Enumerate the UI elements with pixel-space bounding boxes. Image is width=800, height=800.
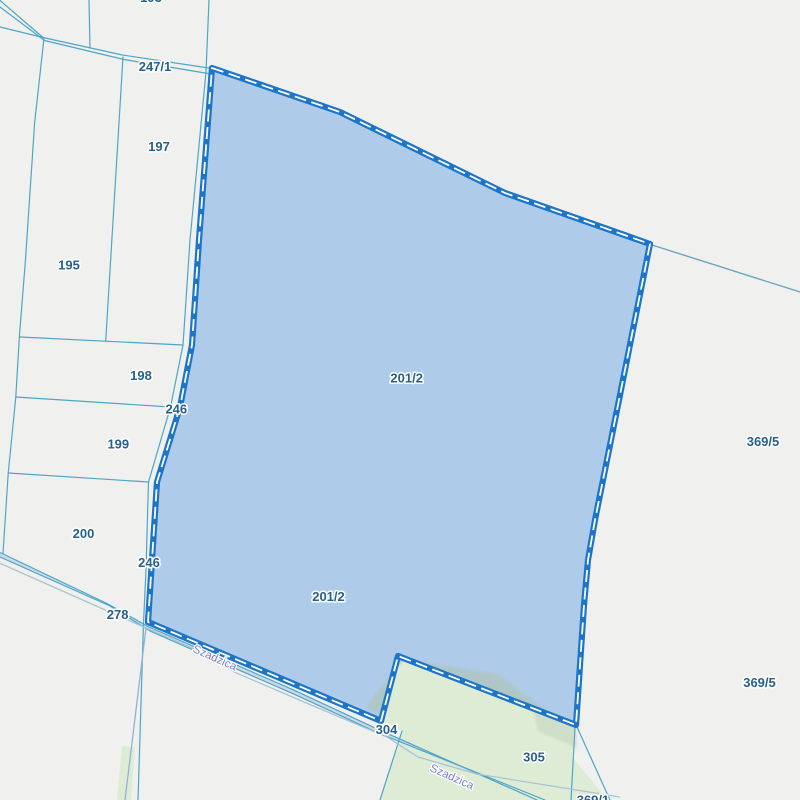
- svg-text:200: 200: [73, 526, 95, 541]
- svg-text:305: 305: [523, 749, 545, 764]
- svg-text:197: 197: [148, 139, 170, 154]
- svg-text:246: 246: [165, 402, 187, 417]
- svg-text:201/2: 201/2: [390, 371, 423, 386]
- svg-text:278: 278: [107, 607, 129, 622]
- svg-text:193: 193: [140, 0, 162, 5]
- svg-text:195: 195: [58, 257, 80, 272]
- svg-text:304: 304: [376, 722, 398, 737]
- svg-text:369/1: 369/1: [577, 793, 610, 800]
- svg-text:369/5: 369/5: [747, 434, 780, 449]
- svg-text:199: 199: [107, 437, 129, 452]
- svg-text:201/2: 201/2: [312, 589, 345, 604]
- svg-text:247/1: 247/1: [139, 59, 172, 74]
- svg-text:369/5: 369/5: [743, 675, 776, 690]
- svg-text:198: 198: [130, 368, 152, 383]
- svg-text:246: 246: [138, 555, 160, 570]
